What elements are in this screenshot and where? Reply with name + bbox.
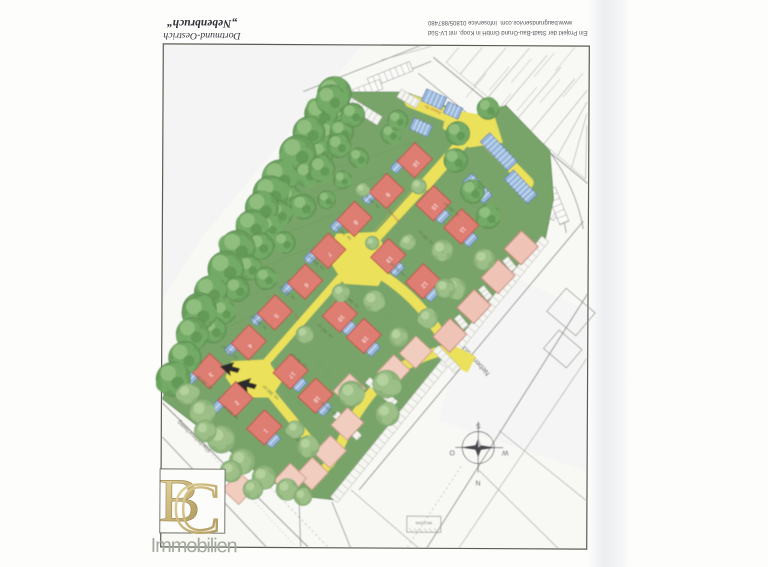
svg-text:Immobilien: Immobilien xyxy=(151,535,238,557)
svg-text:„Nebenbruch“: „Nebenbruch“ xyxy=(167,17,238,29)
svg-text:Dortmund-Oestrich: Dortmund-Oestrich xyxy=(163,30,241,41)
svg-text:www.baugrundservice.com Infos: www.baugrundservice.com Infoservice 0180… xyxy=(427,19,573,25)
svg-text:Ein Projekt der Stadt-Bau-Grun: Ein Projekt der Stadt-Bau-Grund GmbH in … xyxy=(428,29,588,35)
